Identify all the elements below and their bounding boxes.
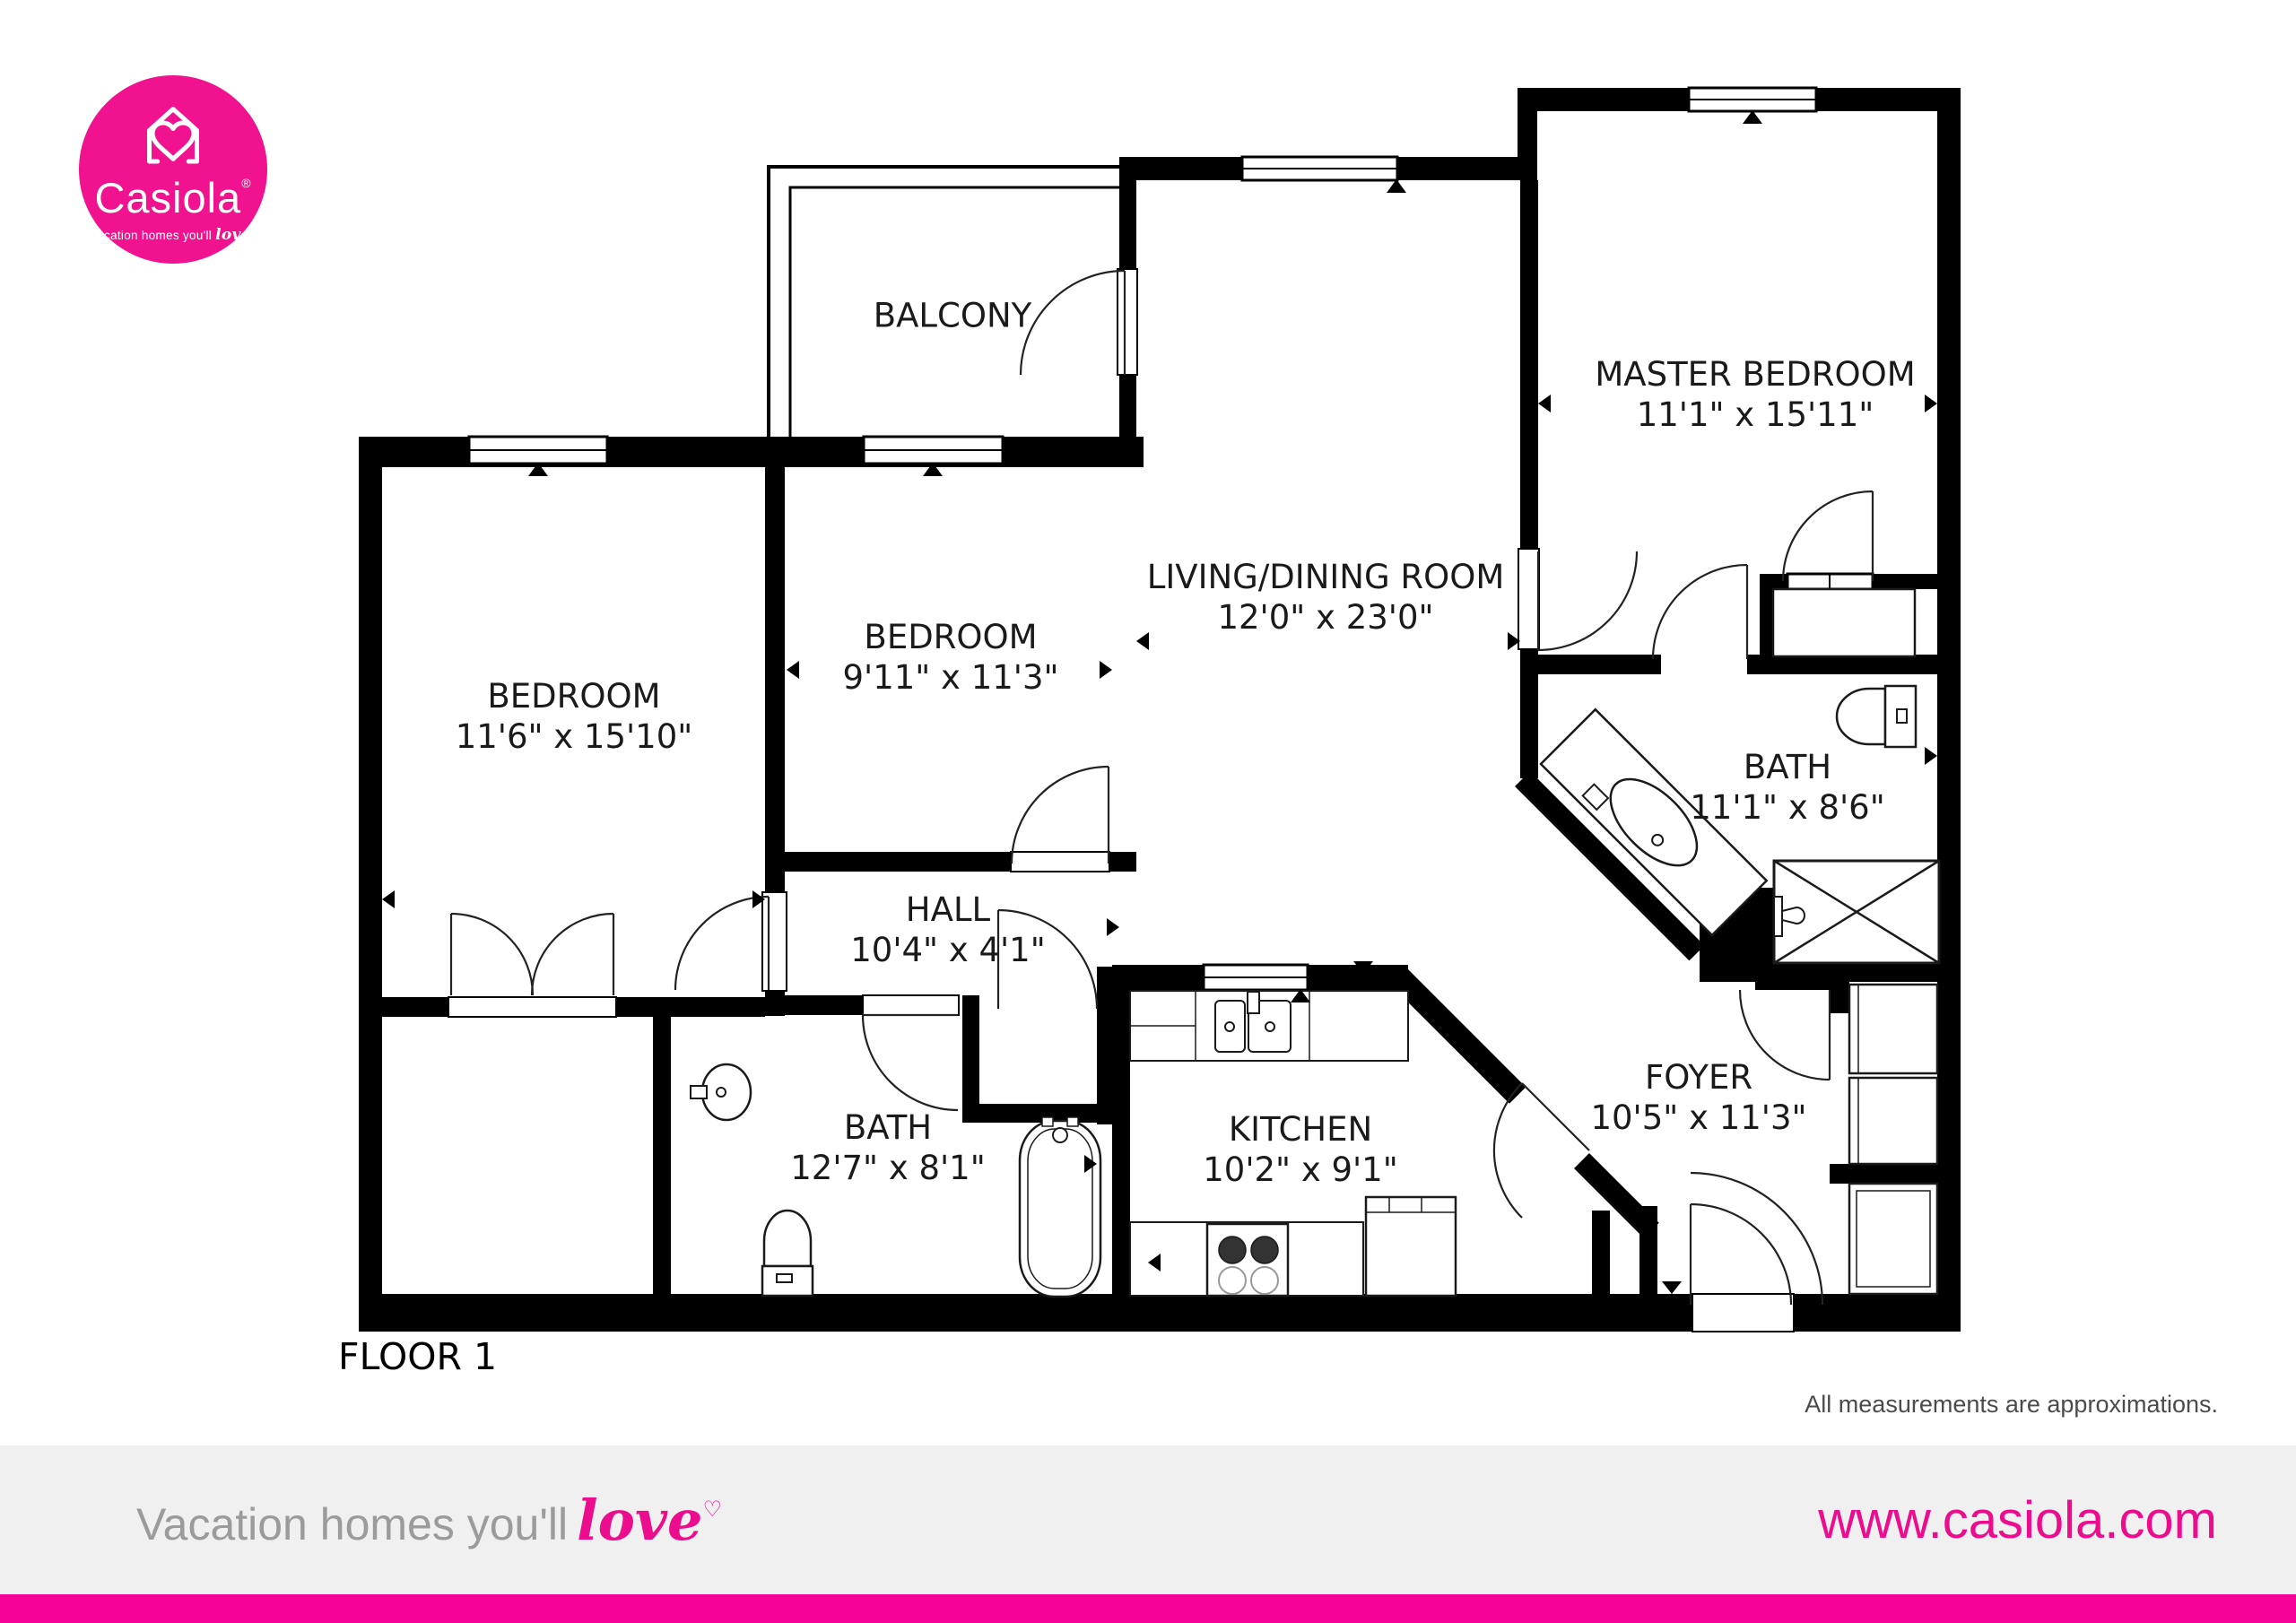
room-dims: 10'2" x 9'1" [1203, 1150, 1398, 1190]
floor-label: FLOOR 1 [338, 1335, 497, 1378]
room-dims: 10'4" x 4'1" [850, 930, 1046, 970]
heart-icon: ♡ [703, 1497, 723, 1522]
room-name: LIVING/DINING ROOM [1147, 557, 1505, 597]
room-name: MASTER BEDROOM [1595, 354, 1915, 395]
room-label-living-dining: LIVING/DINING ROOM 12'0" x 23'0" [1147, 557, 1505, 638]
room-dims: 11'6" x 15'10" [456, 716, 693, 757]
room-name: KITCHEN [1203, 1109, 1398, 1150]
room-label-bedroom-middle: BEDROOM 9'11" x 11'3" [842, 617, 1058, 698]
footer-band: Vacation homes you'lllove♡ www.casiola.c… [0, 1445, 2296, 1594]
footer-tagline-text: Vacation homes you'll [136, 1499, 568, 1549]
room-name: BALCONY [874, 296, 1032, 334]
room-name: BATH [1690, 747, 1885, 787]
measurements-disclaimer: All measurements are approximations. [1805, 1391, 2218, 1419]
logo-registered-mark: ® [241, 176, 251, 190]
room-name: FOYER [1590, 1057, 1806, 1098]
room-dims: 12'0" x 23'0" [1147, 597, 1505, 638]
logo-tagline-love: love [215, 226, 251, 244]
footer-tagline: Vacation homes you'lllove♡ [136, 1488, 722, 1553]
footer-pink-bar [0, 1594, 2296, 1623]
casiola-floorplan-page: BALCONY BEDROOM 11'6" x 15'10" BEDROOM 9… [0, 0, 2296, 1623]
room-dims: 10'5" x 11'3" [1590, 1098, 1806, 1138]
room-label-hall: HALL 10'4" x 4'1" [850, 890, 1046, 970]
room-dims: 11'1" x 15'11" [1595, 395, 1915, 435]
room-name: BATH [790, 1107, 986, 1148]
logo-brand-text: Casiola [94, 174, 241, 221]
room-label-bath-bottom: BATH 12'7" x 8'1" [790, 1107, 986, 1188]
logo-tagline-text: Vacation homes you'll [90, 229, 212, 242]
logo-brand: Casiola® [94, 173, 251, 222]
website-link[interactable]: www.casiola.com [1818, 1490, 2217, 1550]
room-label-foyer: FOYER 10'5" x 11'3" [1590, 1057, 1806, 1138]
room-dims: 9'11" x 11'3" [842, 657, 1058, 698]
room-name: BEDROOM [456, 676, 693, 716]
logo-tagline-registered: ® [251, 226, 257, 234]
room-label-kitchen: KITCHEN 10'2" x 9'1" [1203, 1109, 1398, 1190]
footer-tagline-love: love [577, 1488, 702, 1553]
house-heart-icon [132, 96, 214, 171]
room-name: BEDROOM [842, 617, 1058, 657]
room-name: HALL [850, 890, 1046, 930]
room-dims: 12'7" x 8'1" [790, 1148, 986, 1188]
room-label-bath-right: BATH 11'1" x 8'6" [1690, 747, 1885, 828]
room-label-master-bedroom: MASTER BEDROOM 11'1" x 15'11" [1595, 354, 1915, 435]
logo-tagline: Vacation homes you'll love® [90, 226, 257, 244]
floor-plan-drawing [0, 0, 2296, 1623]
casiola-logo: Casiola® Vacation homes you'll love® [79, 75, 267, 264]
room-dims: 11'1" x 8'6" [1690, 787, 1885, 828]
room-label-balcony: BALCONY [874, 295, 1032, 335]
room-label-bedroom-left: BEDROOM 11'6" x 15'10" [456, 676, 693, 757]
